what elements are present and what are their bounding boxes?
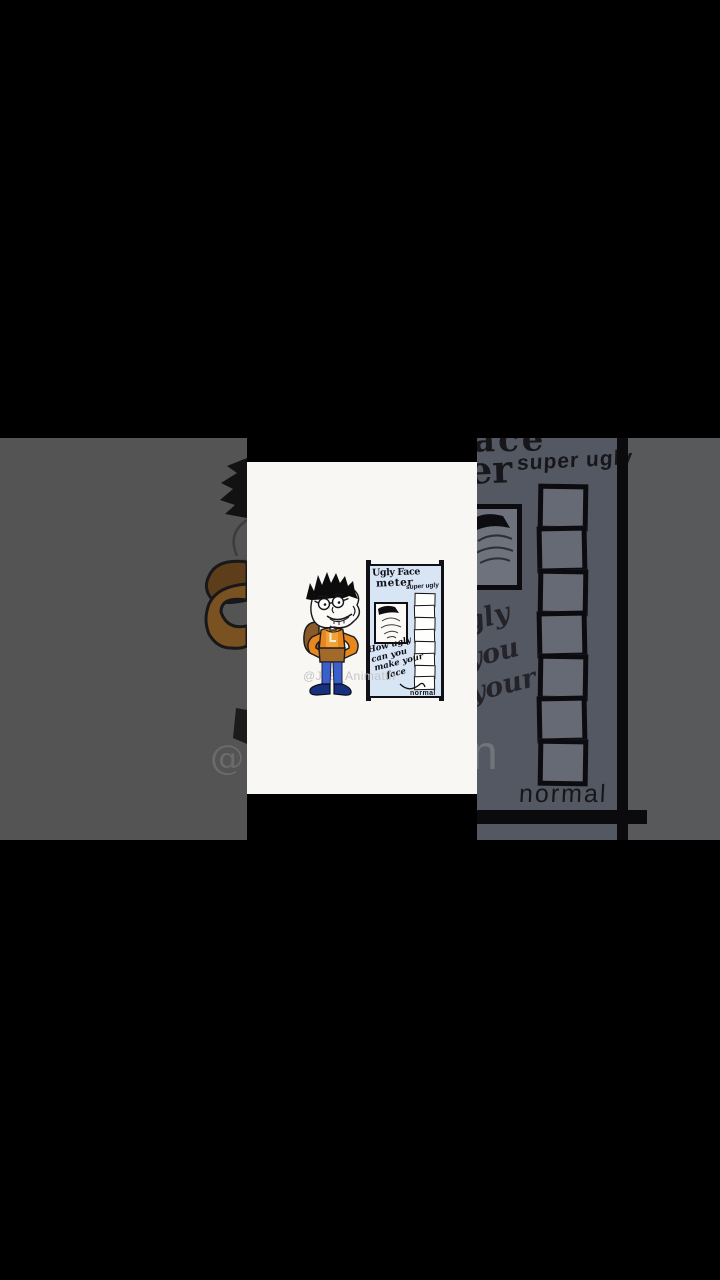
background-blur-left: @ <box>0 438 247 840</box>
caption-flourish <box>399 677 427 695</box>
bg-caption-fragment: gly <box>477 597 513 638</box>
meter-cell <box>538 484 589 532</box>
left-shoe <box>310 684 330 695</box>
bg-sign-outer-area <box>627 438 720 840</box>
animation-frame-card: @JLB_Animatin Ugly Face meter super ugly… <box>247 462 477 794</box>
right-pupil <box>338 601 341 604</box>
left-pupil <box>324 603 327 606</box>
bg-sign-bottom-bar <box>477 810 647 824</box>
scale-top-label: super ugly <box>406 582 439 591</box>
spiky-hair <box>306 572 358 600</box>
video-frame: @ ace er super ugly gly you your n norma… <box>0 0 720 1280</box>
right-shoe <box>334 684 351 695</box>
bg-watermark-letter: n <box>477 726 498 781</box>
meter-cell <box>537 611 588 659</box>
bg-character-fragment <box>187 458 247 780</box>
right-leg <box>333 662 342 686</box>
background-blur-right: ace er super ugly gly you your n normal <box>477 438 720 840</box>
shirt-panel <box>326 630 338 648</box>
meter-cell <box>538 568 589 616</box>
meter-cell <box>537 696 588 744</box>
bg-title-fragment-bottom: er <box>477 450 513 490</box>
cartoon-boy <box>297 570 369 704</box>
bg-picture-frame <box>477 504 522 590</box>
meter-cell <box>537 526 588 574</box>
bg-scale-bottom-label: normal <box>518 780 608 809</box>
bg-watermark-at: @ <box>210 738 244 778</box>
bg-scale-top-label: super ugly <box>517 446 634 476</box>
bg-meter-ladder <box>537 484 587 786</box>
bg-hair-fragment <box>220 458 247 518</box>
meter-cell <box>538 653 589 701</box>
bg-ugly-face-sketch <box>477 509 517 575</box>
bg-sign-post <box>617 438 628 840</box>
left-leg <box>322 662 331 686</box>
waistband <box>319 648 345 662</box>
